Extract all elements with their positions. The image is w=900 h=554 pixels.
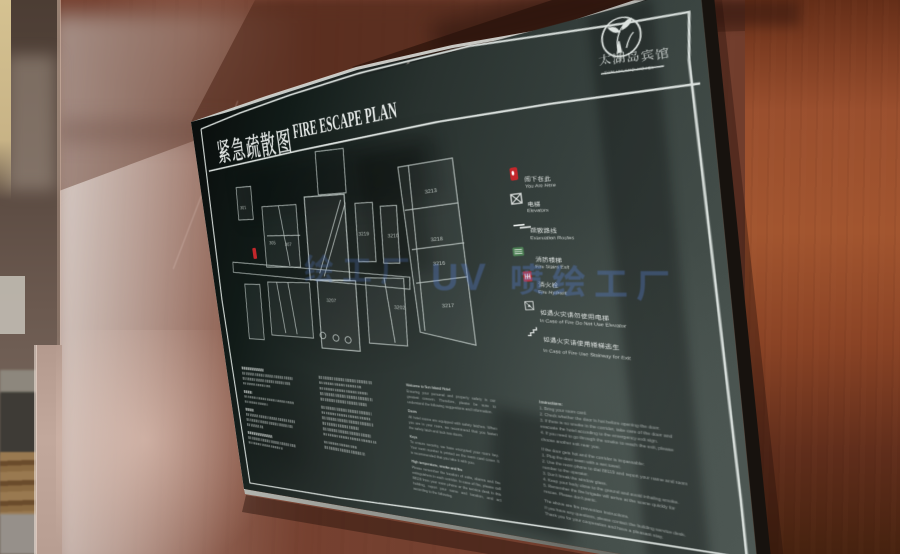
svg-text:UV: UV (431, 257, 488, 299)
